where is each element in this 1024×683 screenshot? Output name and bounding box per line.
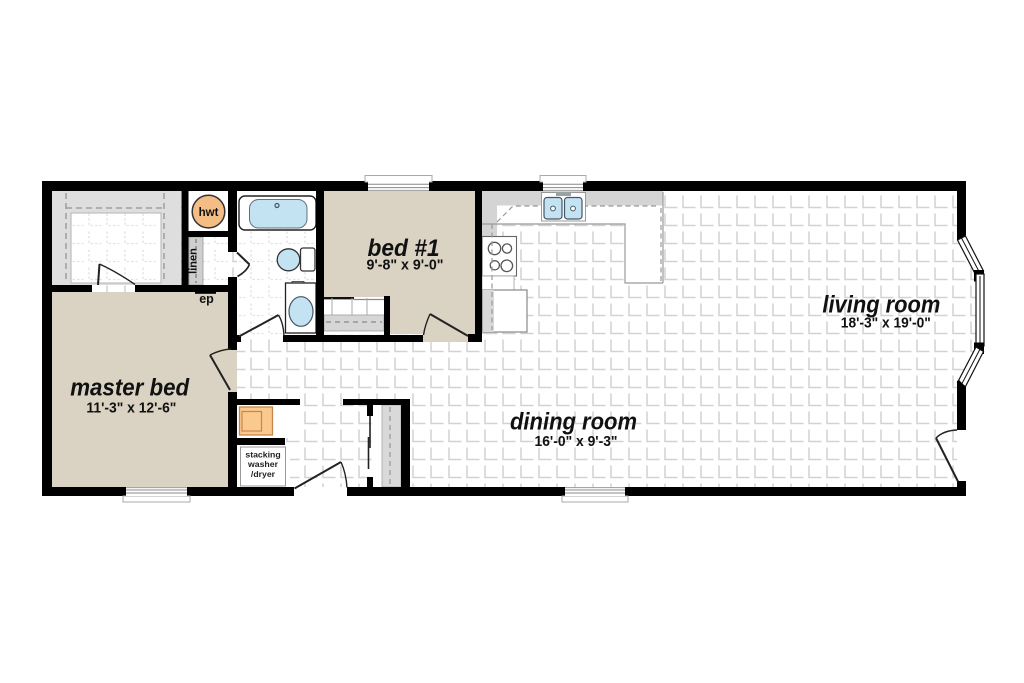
svg-text:18'-3" x 19'-0": 18'-3" x 19'-0" xyxy=(841,315,931,332)
svg-text:hwt: hwt xyxy=(199,207,219,219)
svg-text:16'-0" x 9'-3": 16'-0" x 9'-3" xyxy=(535,433,618,450)
svg-text:linen: linen xyxy=(188,248,200,274)
svg-text:9'-8" x 9'-0": 9'-8" x 9'-0" xyxy=(367,257,444,274)
svg-text:stacking: stacking xyxy=(245,450,280,460)
svg-text:11'-3" x 12'-6": 11'-3" x 12'-6" xyxy=(86,400,176,417)
svg-text:dining room: dining room xyxy=(510,409,637,436)
svg-text:ep: ep xyxy=(199,292,214,306)
svg-text:master bed: master bed xyxy=(70,375,190,402)
svg-text:washer: washer xyxy=(247,459,279,469)
svg-text:/dryer: /dryer xyxy=(251,469,276,479)
